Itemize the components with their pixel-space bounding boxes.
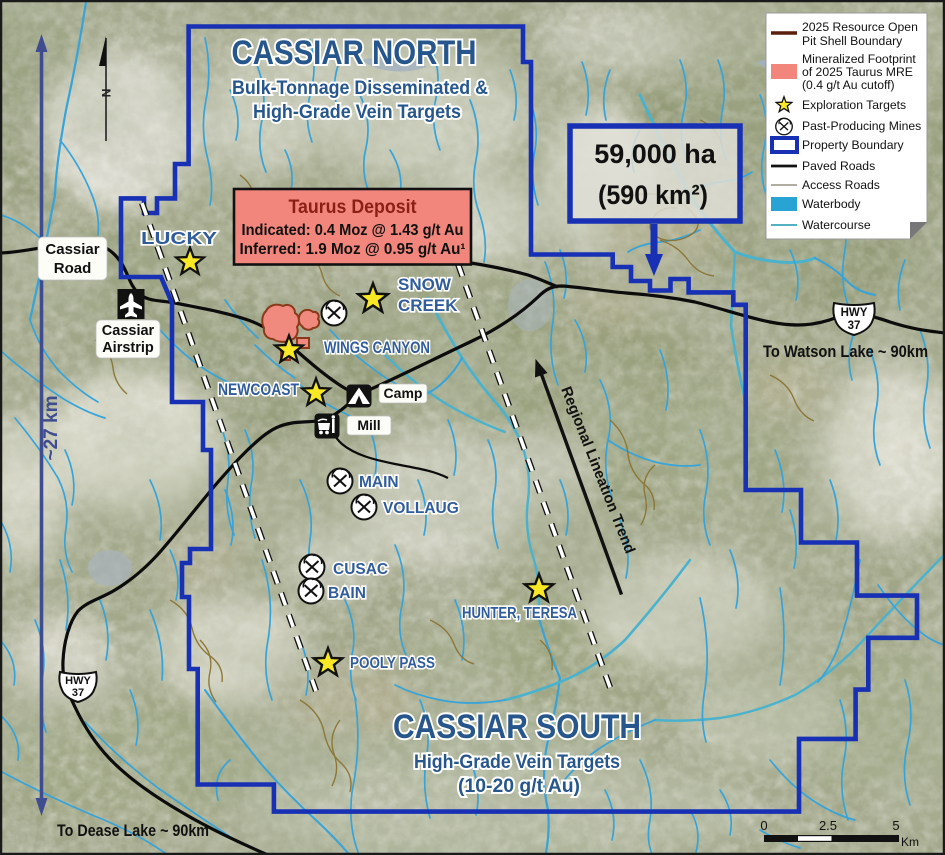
svg-text:59,000 ha: 59,000 ha [594,139,717,169]
svg-text:To Dease Lake ~ 90km: To Dease Lake ~ 90km [57,821,209,840]
svg-text:HWY: HWY [841,307,868,319]
svg-text:Km: Km [901,835,919,849]
svg-text:LUCKY: LUCKY [141,228,217,248]
svg-text:Cassiar: Cassiar [102,323,155,339]
svg-text:BAIN: BAIN [328,585,366,602]
svg-text:Exploration Targets: Exploration Targets [802,98,906,112]
svg-text:Past-Producing Mines: Past-Producing Mines [802,119,921,133]
svg-text:N: N [99,89,113,98]
svg-text:37: 37 [72,687,84,699]
svg-text:Cassiar: Cassiar [45,241,99,258]
svg-text:5: 5 [892,818,899,833]
svg-text:of 2025 Taurus MRE: of 2025 Taurus MRE [802,65,913,79]
svg-text:NEWCOAST: NEWCOAST [218,380,299,399]
svg-text:2025 Resource Open: 2025 Resource Open [802,20,918,34]
svg-text:Bulk-Tonnage Disseminated &: Bulk-Tonnage Disseminated & [232,78,488,99]
svg-text:CREEK: CREEK [398,296,458,315]
svg-text:Watercourse: Watercourse [802,218,871,232]
svg-text:MAIN: MAIN [359,474,399,491]
svg-text:Mill: Mill [357,417,380,433]
svg-text:(10-20 g/t Au): (10-20 g/t Au) [458,776,580,797]
svg-text:2.5: 2.5 [819,818,837,833]
svg-text:WINGS CANYON: WINGS CANYON [324,338,430,357]
svg-text:Road: Road [54,260,92,277]
svg-text:To Watson Lake ~ 90km: To Watson Lake ~ 90km [763,343,928,361]
svg-text:Pit Shell Boundary: Pit Shell Boundary [802,34,903,48]
svg-text:High-Grade Vein Targets: High-Grade Vein Targets [414,752,620,773]
svg-text:Taurus Deposit: Taurus Deposit [289,196,417,218]
svg-text:CASSIAR SOUTH: CASSIAR SOUTH [393,708,641,746]
svg-text:Mineralized Footprint: Mineralized Footprint [802,52,916,66]
svg-text:CASSIAR NORTH: CASSIAR NORTH [232,34,477,72]
svg-text:VOLLAUG: VOLLAUG [383,500,459,517]
svg-text:Indicated: 0.4 Moz @ 1.43 g/t: Indicated: 0.4 Moz @ 1.43 g/t Au [242,222,464,239]
svg-text:HUNTER, TERESA: HUNTER, TERESA [462,605,577,622]
svg-text:(0.4 g/t Au cutoff): (0.4 g/t Au cutoff) [802,78,895,92]
svg-text:Airstrip: Airstrip [102,340,154,356]
svg-text:Paved Roads: Paved Roads [802,159,875,173]
svg-text:Camp: Camp [384,385,423,401]
svg-text:POOLY PASS: POOLY PASS [350,655,435,672]
svg-text:37: 37 [848,320,861,332]
svg-text:High-Grade Vein Targets: High-Grade Vein Targets [253,102,461,123]
svg-text:HWY: HWY [65,675,91,687]
svg-text:CUSAC: CUSAC [333,561,388,578]
svg-text:(590 km²): (590 km²) [598,180,708,210]
svg-text:Property Boundary: Property Boundary [802,138,905,152]
svg-text:Waterbody: Waterbody [802,197,861,211]
svg-text:Access Roads: Access Roads [802,178,880,192]
svg-text:~27 km: ~27 km [41,396,62,461]
svg-text:0: 0 [760,818,767,833]
svg-text:Inferred: 1.9 Moz @ 0.95 g/t A: Inferred: 1.9 Moz @ 0.95 g/t Au¹ [240,241,466,258]
svg-text:SNOW: SNOW [398,275,452,294]
